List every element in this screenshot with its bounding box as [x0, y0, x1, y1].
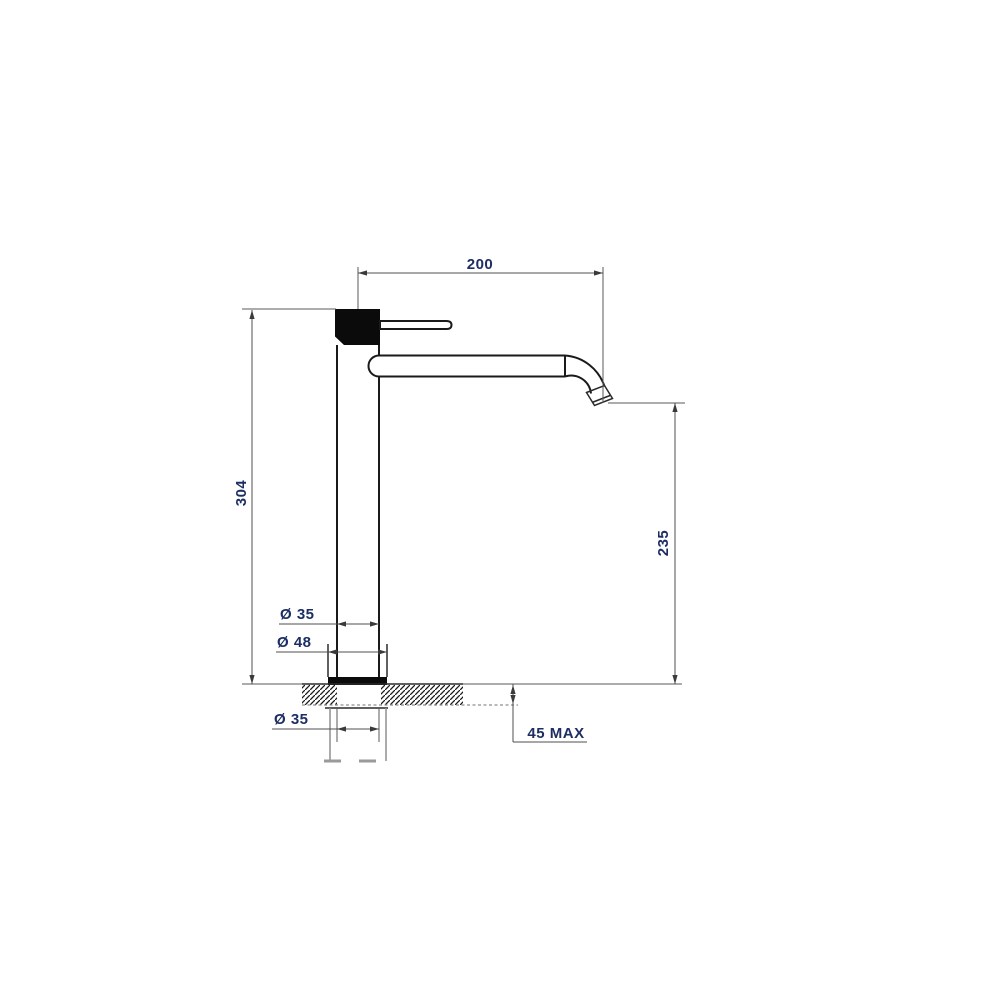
- dim-dia35b-label: Ø 35: [274, 711, 309, 728]
- dim-overall-height: 304: [233, 309, 336, 684]
- dim-304-label: 304: [233, 480, 250, 507]
- dim-200-label: 200: [467, 256, 494, 273]
- counter-hatch-left: [302, 685, 337, 705]
- dim-45max-label: 45 MAX: [527, 725, 584, 742]
- drawing-canvas: 200 304 235 Ø 35 Ø 48 Ø 35: [0, 0, 1000, 1000]
- dim-dia48-arrow-right: [378, 649, 387, 654]
- faucet-technical-drawing: 200 304 235 Ø 35 Ø 48 Ø 35: [0, 0, 1000, 1000]
- dim-dia35-arrow-left: [337, 621, 346, 626]
- dim-dia48-label: Ø 48: [277, 634, 312, 651]
- counter-section: [242, 684, 682, 705]
- dim-45max-arrow-down: [510, 695, 515, 704]
- counter-hatch-right: [381, 685, 463, 705]
- spout-inner-bend: [565, 376, 591, 394]
- dim-45max-arrow-up: [510, 685, 515, 694]
- dim-dia35b-arrow-right: [370, 726, 379, 731]
- dim-dia48-arrow-left: [328, 649, 337, 654]
- shank-assembly: [324, 708, 388, 761]
- dim-dia35b-arrow-left: [337, 726, 346, 731]
- dim-shank-diameter: Ø 35: [272, 711, 379, 732]
- dim-235-arrow-bottom: [672, 675, 677, 684]
- dim-235-label: 235: [655, 530, 672, 557]
- lever-handle: [380, 321, 452, 329]
- dim-deck-thickness: 45 MAX: [510, 684, 587, 742]
- dim-base-diameter: Ø 48: [276, 634, 387, 655]
- dim-200-arrow-right: [594, 270, 603, 275]
- nozzle-aerator-line: [592, 396, 610, 403]
- dim-body-diameter: Ø 35: [279, 606, 379, 627]
- dim-dia35-arrow-right: [370, 621, 379, 626]
- spout-left-cap: [369, 356, 380, 377]
- dim-235-arrow-top: [672, 403, 677, 412]
- dim-200-arrow-left: [358, 270, 367, 275]
- cartridge-block: [335, 309, 380, 345]
- dim-304-arrow-top: [249, 310, 254, 319]
- faucet-outline: [328, 309, 613, 685]
- dim-dia35-label: Ø 35: [280, 606, 315, 623]
- dim-304-arrow-bottom: [249, 675, 254, 684]
- dim-outlet-height: 235: [608, 403, 685, 684]
